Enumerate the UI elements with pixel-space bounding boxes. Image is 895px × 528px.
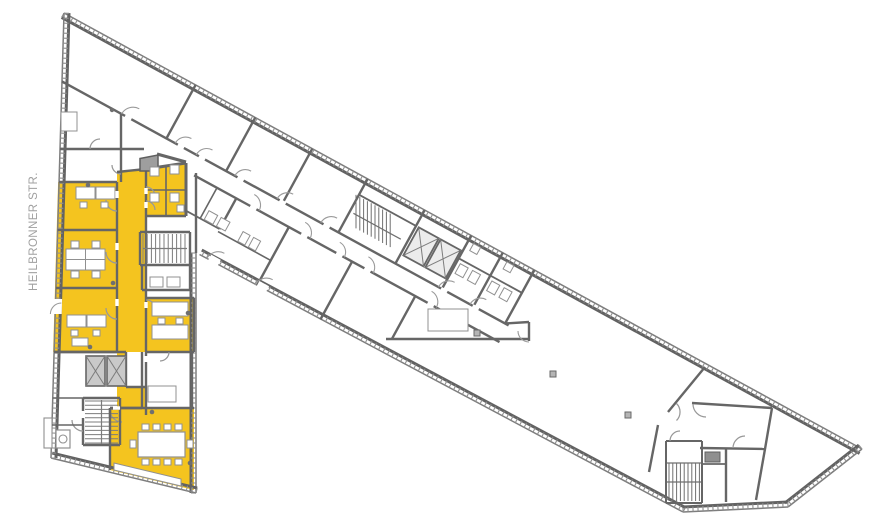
svg-text:HEILBRONNER STR.: HEILBRONNER STR. xyxy=(28,172,40,291)
